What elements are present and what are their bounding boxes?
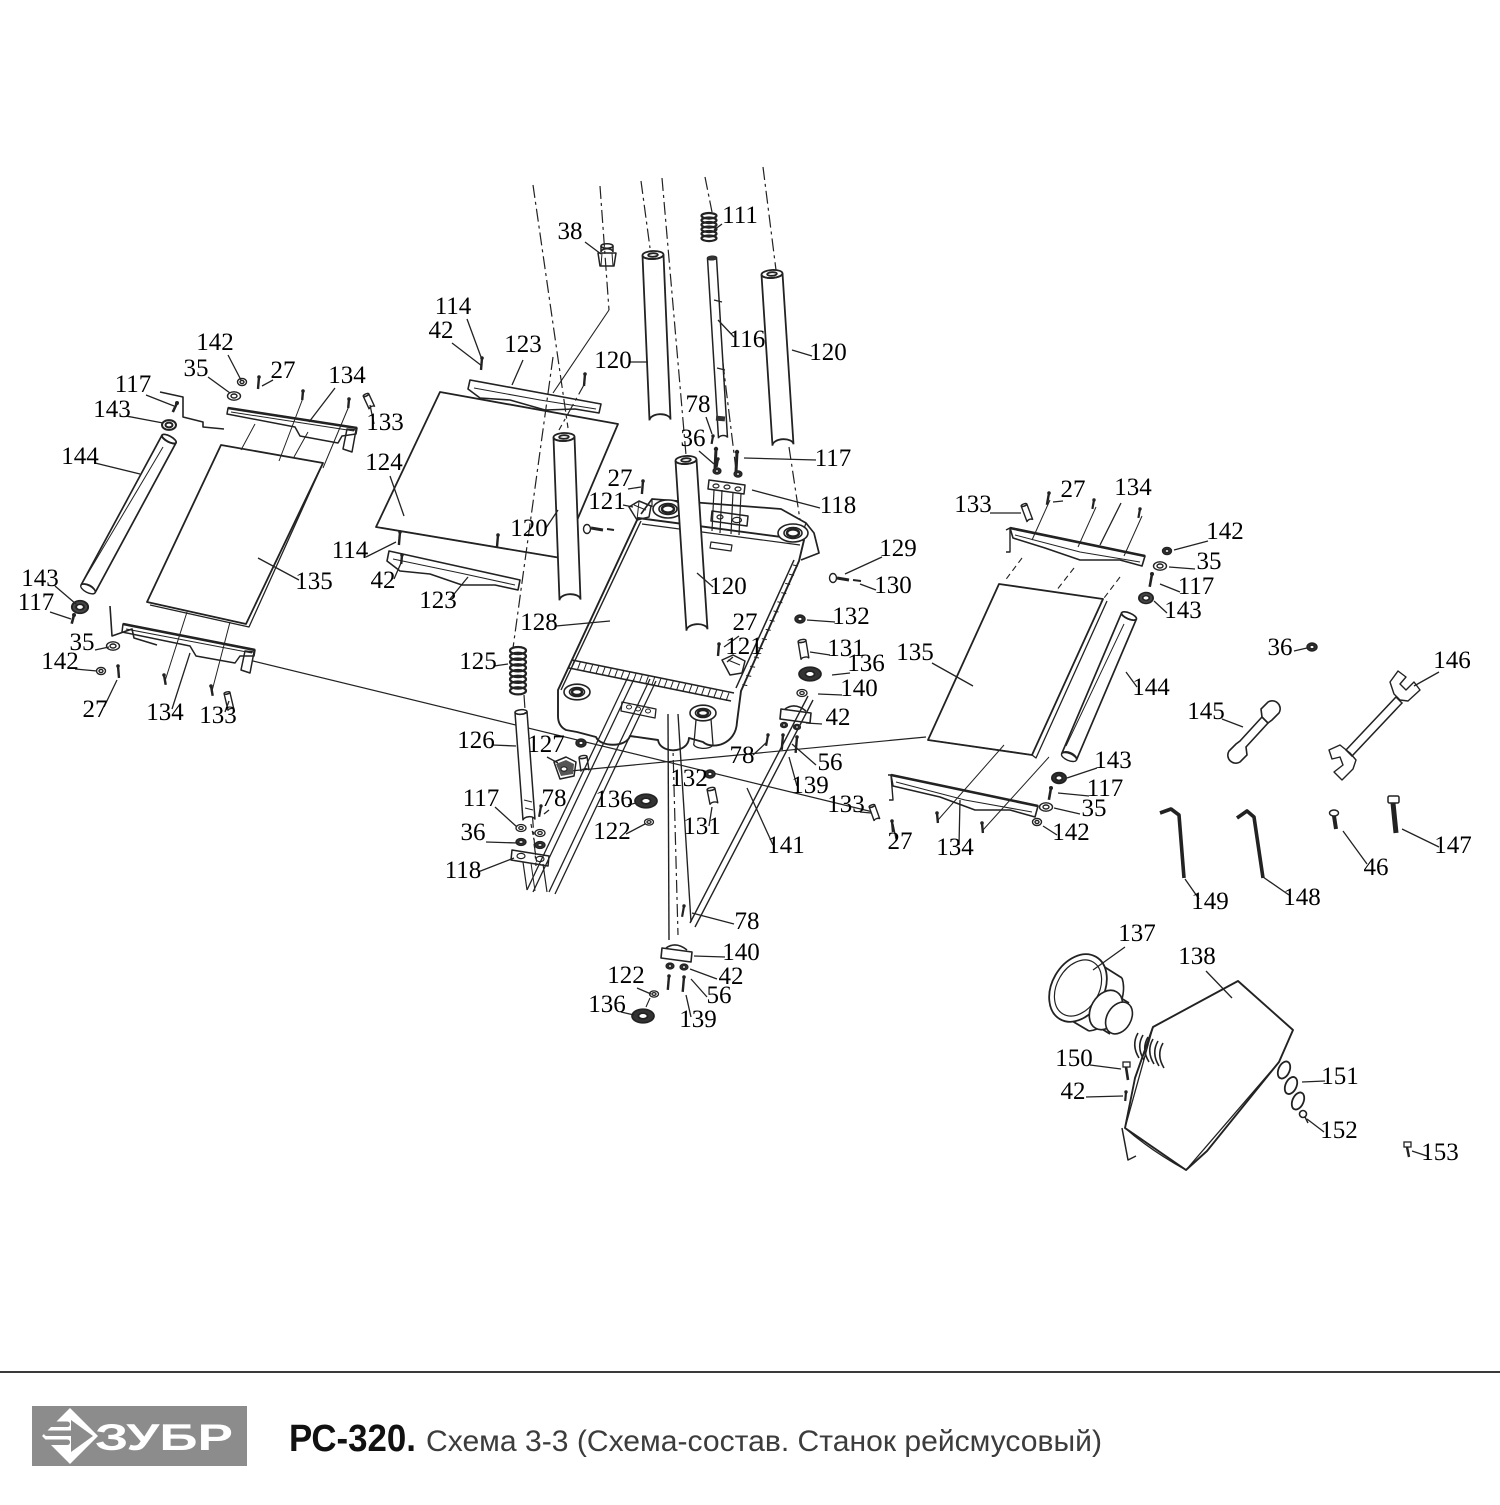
svg-text:125: 125: [459, 648, 497, 675]
svg-text:145: 145: [1187, 698, 1225, 725]
svg-text:152: 152: [1320, 1117, 1358, 1144]
svg-text:134: 134: [936, 834, 974, 861]
svg-text:42: 42: [1061, 1078, 1086, 1105]
svg-text:РС-320.: РС-320.: [289, 1418, 416, 1460]
svg-text:27: 27: [733, 609, 758, 636]
svg-text:120: 120: [809, 339, 847, 366]
svg-text:46: 46: [1364, 854, 1389, 881]
svg-text:134: 134: [1114, 474, 1152, 501]
svg-text:120: 120: [594, 347, 632, 374]
svg-text:133: 133: [827, 791, 865, 818]
svg-text:78: 78: [730, 742, 755, 769]
svg-text:121: 121: [588, 488, 626, 515]
svg-text:146: 146: [1433, 647, 1471, 674]
svg-text:142: 142: [1206, 518, 1244, 545]
svg-text:117: 117: [815, 445, 852, 472]
svg-text:35: 35: [1197, 548, 1222, 575]
svg-text:134: 134: [146, 699, 184, 726]
svg-text:135: 135: [896, 639, 934, 666]
svg-text:35: 35: [184, 355, 209, 382]
svg-text:136: 136: [595, 786, 633, 813]
svg-text:111: 111: [722, 202, 758, 229]
svg-text:36: 36: [1268, 634, 1293, 661]
svg-text:133: 133: [366, 409, 404, 436]
svg-text:139: 139: [791, 772, 829, 799]
svg-text:114: 114: [332, 537, 369, 564]
svg-text:135: 135: [295, 568, 333, 595]
svg-text:139: 139: [679, 1006, 717, 1033]
svg-text:126: 126: [457, 727, 495, 754]
svg-text:149: 149: [1191, 888, 1229, 915]
svg-text:143: 143: [1164, 597, 1202, 624]
svg-text:143: 143: [1094, 747, 1132, 774]
svg-text:117: 117: [463, 785, 500, 812]
svg-text:116: 116: [729, 326, 766, 353]
svg-text:141: 141: [767, 832, 805, 859]
svg-text:42: 42: [429, 317, 454, 344]
svg-text:143: 143: [93, 396, 131, 423]
svg-text:78: 78: [735, 908, 760, 935]
svg-text:124: 124: [365, 449, 403, 476]
svg-text:153: 153: [1421, 1139, 1459, 1166]
svg-text:36: 36: [681, 425, 706, 452]
svg-text:138: 138: [1178, 943, 1216, 970]
svg-text:136: 136: [588, 991, 626, 1018]
svg-text:27: 27: [1061, 476, 1086, 503]
svg-text:56: 56: [707, 982, 732, 1009]
svg-text:123: 123: [504, 331, 542, 358]
svg-text:150: 150: [1055, 1045, 1093, 1072]
svg-text:123: 123: [419, 587, 457, 614]
svg-text:120: 120: [709, 573, 747, 600]
svg-text:36: 36: [461, 819, 486, 846]
svg-text:132: 132: [832, 603, 870, 630]
svg-text:117: 117: [1178, 573, 1215, 600]
svg-text:122: 122: [607, 962, 645, 989]
svg-text:78: 78: [542, 785, 567, 812]
svg-text:133: 133: [199, 702, 237, 729]
svg-text:117: 117: [115, 371, 152, 398]
svg-text:121: 121: [725, 633, 763, 660]
svg-text:35: 35: [1082, 795, 1107, 822]
svg-text:142: 142: [41, 648, 79, 675]
svg-text:142: 142: [1052, 819, 1090, 846]
svg-text:142: 142: [196, 329, 234, 356]
svg-text:140: 140: [840, 675, 878, 702]
svg-text:118: 118: [820, 492, 857, 519]
svg-text:42: 42: [826, 704, 851, 731]
svg-text:132: 132: [670, 765, 708, 792]
svg-text:140: 140: [722, 939, 760, 966]
svg-text:151: 151: [1321, 1063, 1359, 1090]
svg-text:130: 130: [874, 572, 912, 599]
svg-text:122: 122: [593, 818, 631, 845]
svg-text:27: 27: [271, 357, 296, 384]
svg-text:117: 117: [18, 589, 55, 616]
svg-text:128: 128: [520, 609, 558, 636]
svg-text:147: 147: [1434, 832, 1472, 859]
svg-text:114: 114: [435, 293, 472, 320]
svg-text:148: 148: [1283, 884, 1321, 911]
svg-text:144: 144: [61, 443, 99, 470]
svg-text:136: 136: [847, 650, 885, 677]
svg-text:129: 129: [879, 535, 917, 562]
svg-text:ЗУБР: ЗУБР: [95, 1417, 233, 1458]
svg-text:27: 27: [888, 828, 913, 855]
svg-text:78: 78: [686, 391, 711, 418]
svg-text:42: 42: [371, 567, 396, 594]
svg-text:137: 137: [1118, 920, 1156, 947]
svg-text:143: 143: [21, 565, 59, 592]
svg-text:131: 131: [683, 813, 721, 840]
svg-text:27: 27: [83, 696, 108, 723]
svg-text:38: 38: [558, 218, 583, 245]
svg-text:133: 133: [954, 491, 992, 518]
svg-text:134: 134: [328, 362, 366, 389]
svg-text:144: 144: [1132, 674, 1170, 701]
svg-text:127: 127: [527, 731, 565, 758]
svg-text:118: 118: [445, 857, 482, 884]
svg-text:Схема 3-3 (Схема-состав. Стано: Схема 3-3 (Схема-состав. Станок рейсмусо…: [426, 1425, 1102, 1458]
svg-text:120: 120: [510, 515, 548, 542]
